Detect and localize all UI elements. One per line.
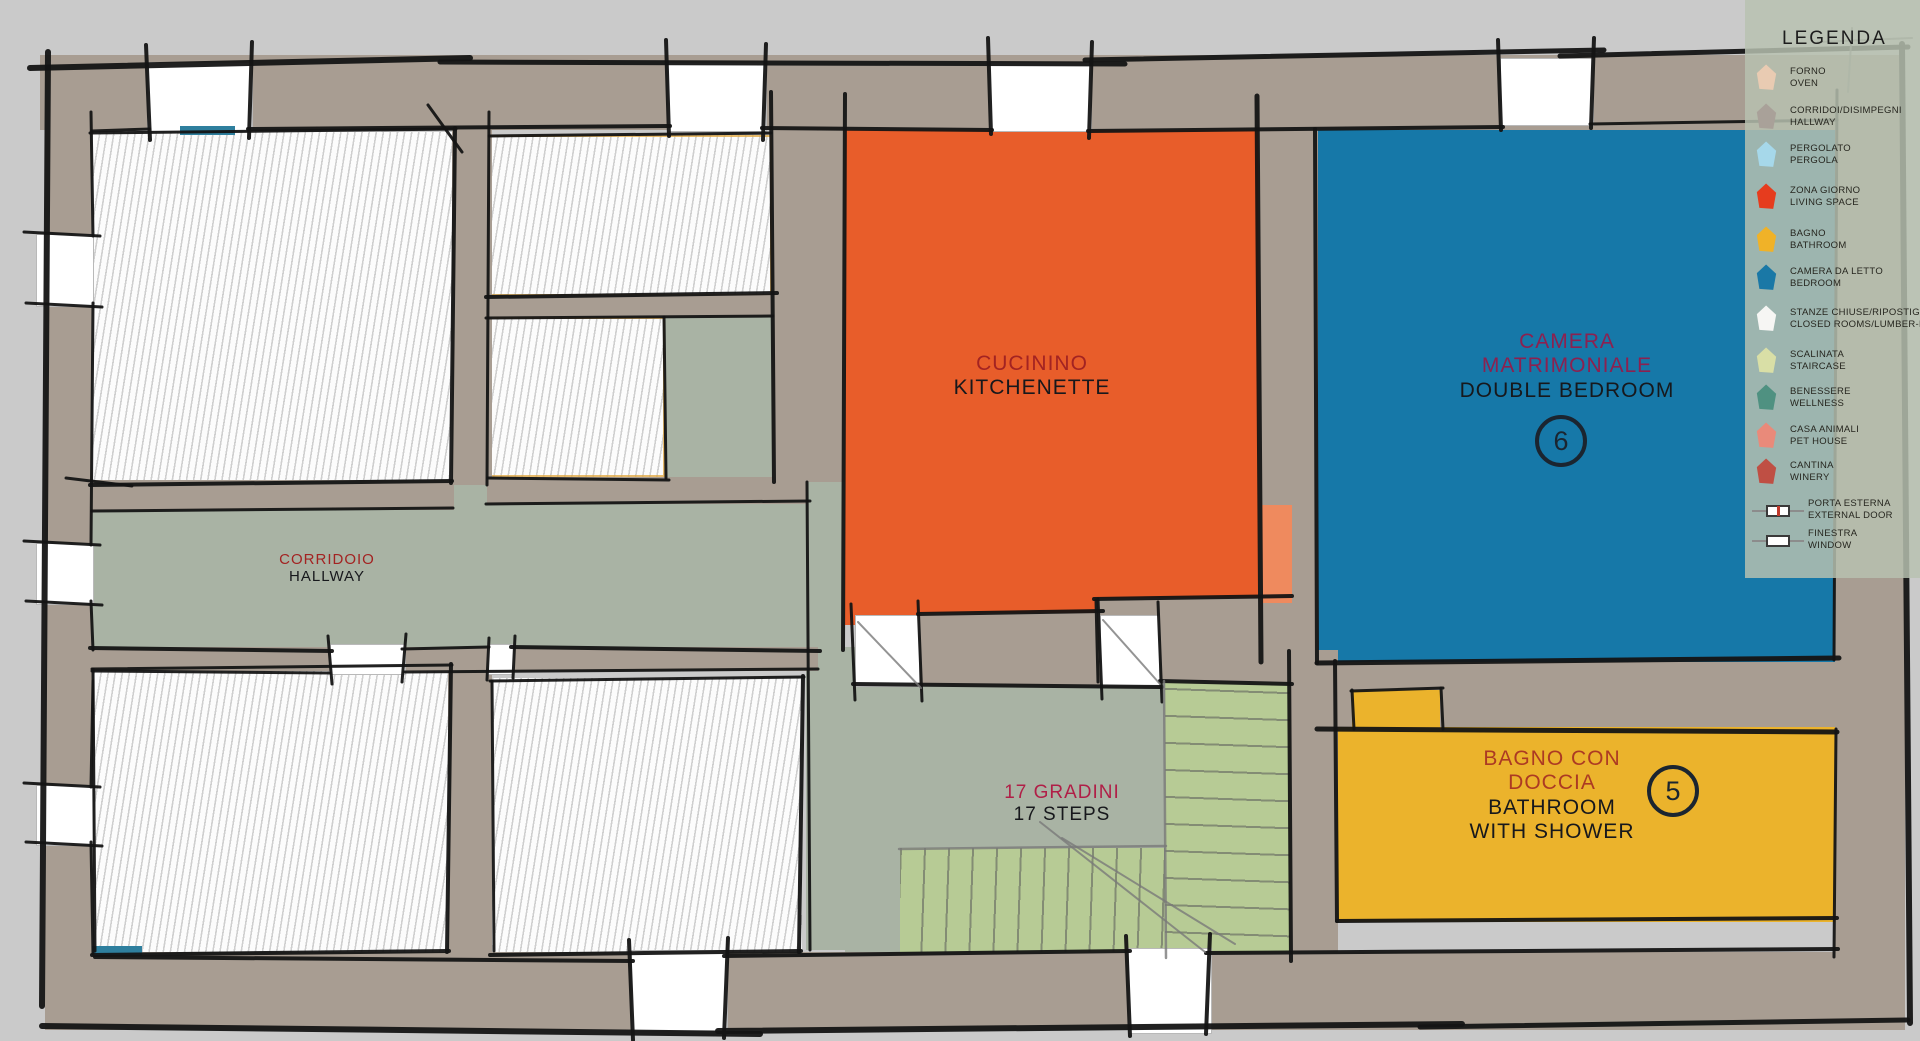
bedroom-number-badge: 6: [1535, 415, 1587, 467]
legend-swatch-icon: [1756, 183, 1777, 210]
door-bottom-1: [631, 950, 728, 1032]
closed-room-bottom-mid: [492, 678, 802, 952]
legend-item-corridoi: CORRIDOI/DISIMPEGNI HALLWAY: [1752, 103, 1920, 133]
legend-item-label-en: WINDOW: [1808, 540, 1851, 551]
legend-item-label-it: BENESSERE: [1790, 386, 1851, 397]
window-left-3: [36, 785, 94, 846]
legend-item-label-it: CASA ANIMALI: [1790, 424, 1859, 435]
window-accent-bottom-left: [92, 946, 142, 956]
wall-left-of-kitchenette: [772, 90, 845, 482]
kitchenette-label-en: KITCHENETTE: [882, 376, 1182, 400]
legend-item-label-en: LIVING SPACE: [1790, 197, 1859, 208]
legend-item-label-en: WINERY: [1790, 472, 1830, 483]
legend-swatch-icon: [1756, 226, 1777, 253]
legend-item-label-en: EXTERNAL DOOR: [1808, 510, 1893, 521]
legend-item-label-it: BAGNO: [1790, 228, 1826, 239]
legend-symbol-icon: [1752, 534, 1804, 547]
legend-swatch-icon: [1756, 422, 1777, 449]
bedroom-label: CAMERA MATRIMONIALE DOUBLE BEDROOM: [1417, 330, 1717, 403]
legend-item-pergolato: PERGOLATO PERGOLA: [1752, 141, 1920, 171]
bedroom-label-it2: MATRIMONIALE: [1417, 354, 1717, 378]
legend-item-camera-da-letto: CAMERA DA LETTO BEDROOM: [1752, 264, 1920, 294]
legend-item-label-it: FORNO: [1790, 66, 1826, 77]
legend-item-benessere: BENESSERE WELLNESS: [1752, 384, 1920, 414]
closed-room-bottom-left: [94, 668, 450, 952]
hallway-label-en: HALLWAY: [227, 568, 427, 585]
bathroom-label-en2: WITH SHOWER: [1402, 820, 1702, 844]
legend-item-label-en: BEDROOM: [1790, 278, 1841, 289]
legend-swatch-icon: [1756, 64, 1777, 91]
legend-item-scalinata: SCALINATA STAIRCASE: [1752, 347, 1920, 377]
wall-rooms23-bottom: [487, 477, 808, 504]
window-left-1: [36, 234, 94, 307]
legend-item-label-it: STANZE CHIUSE/RIPOSTIGLIO: [1790, 307, 1920, 318]
window-left-2: [36, 543, 94, 605]
closed-room-top-left: [92, 132, 454, 480]
hallway-channel: [806, 480, 845, 950]
legend-item-label-en: PERGOLA: [1790, 155, 1838, 166]
legend-item-cantina: CANTINA WINERY: [1752, 458, 1920, 488]
wall-room1-room2: [452, 110, 492, 485]
legend-item-finestra: FINESTRA WINDOW: [1752, 526, 1920, 556]
staircase-label: 17 GRADINI 17 STEPS: [962, 782, 1162, 826]
hallway-label: CORRIDOIO HALLWAY: [227, 551, 427, 586]
legend-item-label-en: PET HOUSE: [1790, 436, 1847, 447]
window-top-4: [1500, 58, 1594, 126]
legend-item-label-it: CANTINA: [1790, 460, 1834, 471]
closed-room-top-mid-upper: [490, 135, 772, 296]
window-top-1: [147, 62, 253, 132]
legend-swatch-icon: [1756, 103, 1777, 130]
door-bottom-2: [1128, 948, 1212, 1034]
wall-room2-room3: [487, 295, 777, 317]
legend-item-stanze-chiuse: STANZE CHIUSE/RIPOSTIGLIO CLOSED ROOMS/L…: [1752, 305, 1920, 335]
legend-item-label-it: ZONA GIORNO: [1790, 185, 1860, 196]
legend-symbol-icon: [1752, 504, 1804, 517]
legend-item-label-it: PORTA ESTERNA: [1808, 498, 1891, 509]
bathroom-notch: [1352, 690, 1440, 727]
staircase-flight-bottom: [900, 848, 1165, 960]
legend-swatch-icon: [1756, 347, 1777, 374]
legend-swatch-icon: [1756, 141, 1777, 168]
legend-item-label-it: FINESTRA: [1808, 528, 1857, 539]
wall-top: [40, 55, 1905, 130]
wall-bottom: [45, 952, 1905, 1030]
wall-room1-bottom: [92, 480, 454, 510]
staircase-label-en: 17 STEPS: [962, 804, 1162, 826]
door-marker-kitchenette-bedroom: [1262, 505, 1292, 603]
legend-item-label-en: CLOSED ROOMS/LUMBER-ROOM: [1790, 319, 1920, 330]
legend-item-zona-giorno: ZONA GIORNO LIVING SPACE: [1752, 183, 1920, 213]
wall-kitchenette-bottom: [920, 613, 1102, 685]
legend-item-label-en: OVEN: [1790, 78, 1818, 89]
kitchenette-label: CUCININO KITCHENETTE: [882, 352, 1182, 401]
legend-item-label-en: HALLWAY: [1790, 117, 1836, 128]
wall-left: [45, 55, 92, 995]
floor-plan-canvas: CUCININO KITCHENETTE CAMERA MATRIMONIALE…: [0, 0, 1920, 1041]
window-top-3: [989, 62, 1092, 132]
staircase-flight-vertical: [1165, 678, 1292, 960]
window-accent-top-left: [180, 126, 235, 135]
legend-swatch-icon: [1756, 305, 1777, 332]
door-kitchenette-right: [1100, 615, 1160, 687]
bathroom-number-badge: 5: [1647, 765, 1699, 817]
stair-landing-strip: [845, 850, 900, 960]
legend: LEGENDA FORNO OVEN CORRIDOI/DISIMPEGNI H…: [1745, 0, 1920, 578]
bathroom-label-it1: BAGNO CON: [1402, 747, 1702, 771]
door-hallway-1: [330, 644, 406, 675]
wall-staircase-bathroom: [1290, 650, 1338, 960]
legend-item-label-it: SCALINATA: [1790, 349, 1844, 360]
legend-item-casa-animali: CASA ANIMALI PET HOUSE: [1752, 422, 1920, 452]
bedroom-label-en: DOUBLE BEDROOM: [1417, 379, 1717, 403]
legend-swatch-icon: [1756, 384, 1777, 411]
hallway-label-it: CORRIDOIO: [227, 551, 427, 568]
legend-item-forno: FORNO OVEN: [1752, 64, 1920, 94]
legend-item-label-en: WELLNESS: [1790, 398, 1844, 409]
bathroom-number: 5: [1665, 776, 1680, 807]
window-top-2: [667, 62, 767, 132]
door-hallway-2: [487, 644, 515, 675]
closed-room-top-mid-lower: [490, 317, 665, 477]
legend-item-label-it: CORRIDOI/DISIMPEGNI: [1790, 105, 1902, 116]
staircase-label-it: 17 GRADINI: [962, 782, 1162, 804]
legend-item-label-en: BATHROOM: [1790, 240, 1847, 251]
bedroom-label-it1: CAMERA: [1417, 330, 1717, 354]
hallway-area-right-of-room: [665, 317, 772, 480]
door-kitchenette-left: [855, 615, 920, 687]
legend-swatch-icon: [1756, 264, 1777, 291]
legend-title: LEGENDA: [1782, 28, 1887, 50]
legend-item-label-en: STAIRCASE: [1790, 361, 1846, 372]
kitchenette-label-it: CUCININO: [882, 352, 1182, 376]
legend-item-label-it: CAMERA DA LETTO: [1790, 266, 1883, 277]
legend-item-porta-esterna: PORTA ESTERNA EXTERNAL DOOR: [1752, 496, 1920, 526]
wall-room4-room5: [448, 660, 492, 952]
legend-item-bagno: BAGNO BATHROOM: [1752, 226, 1920, 256]
legend-item-label-it: PERGOLATO: [1790, 143, 1851, 154]
bedroom-number: 6: [1553, 426, 1568, 457]
legend-swatch-icon: [1756, 458, 1777, 485]
